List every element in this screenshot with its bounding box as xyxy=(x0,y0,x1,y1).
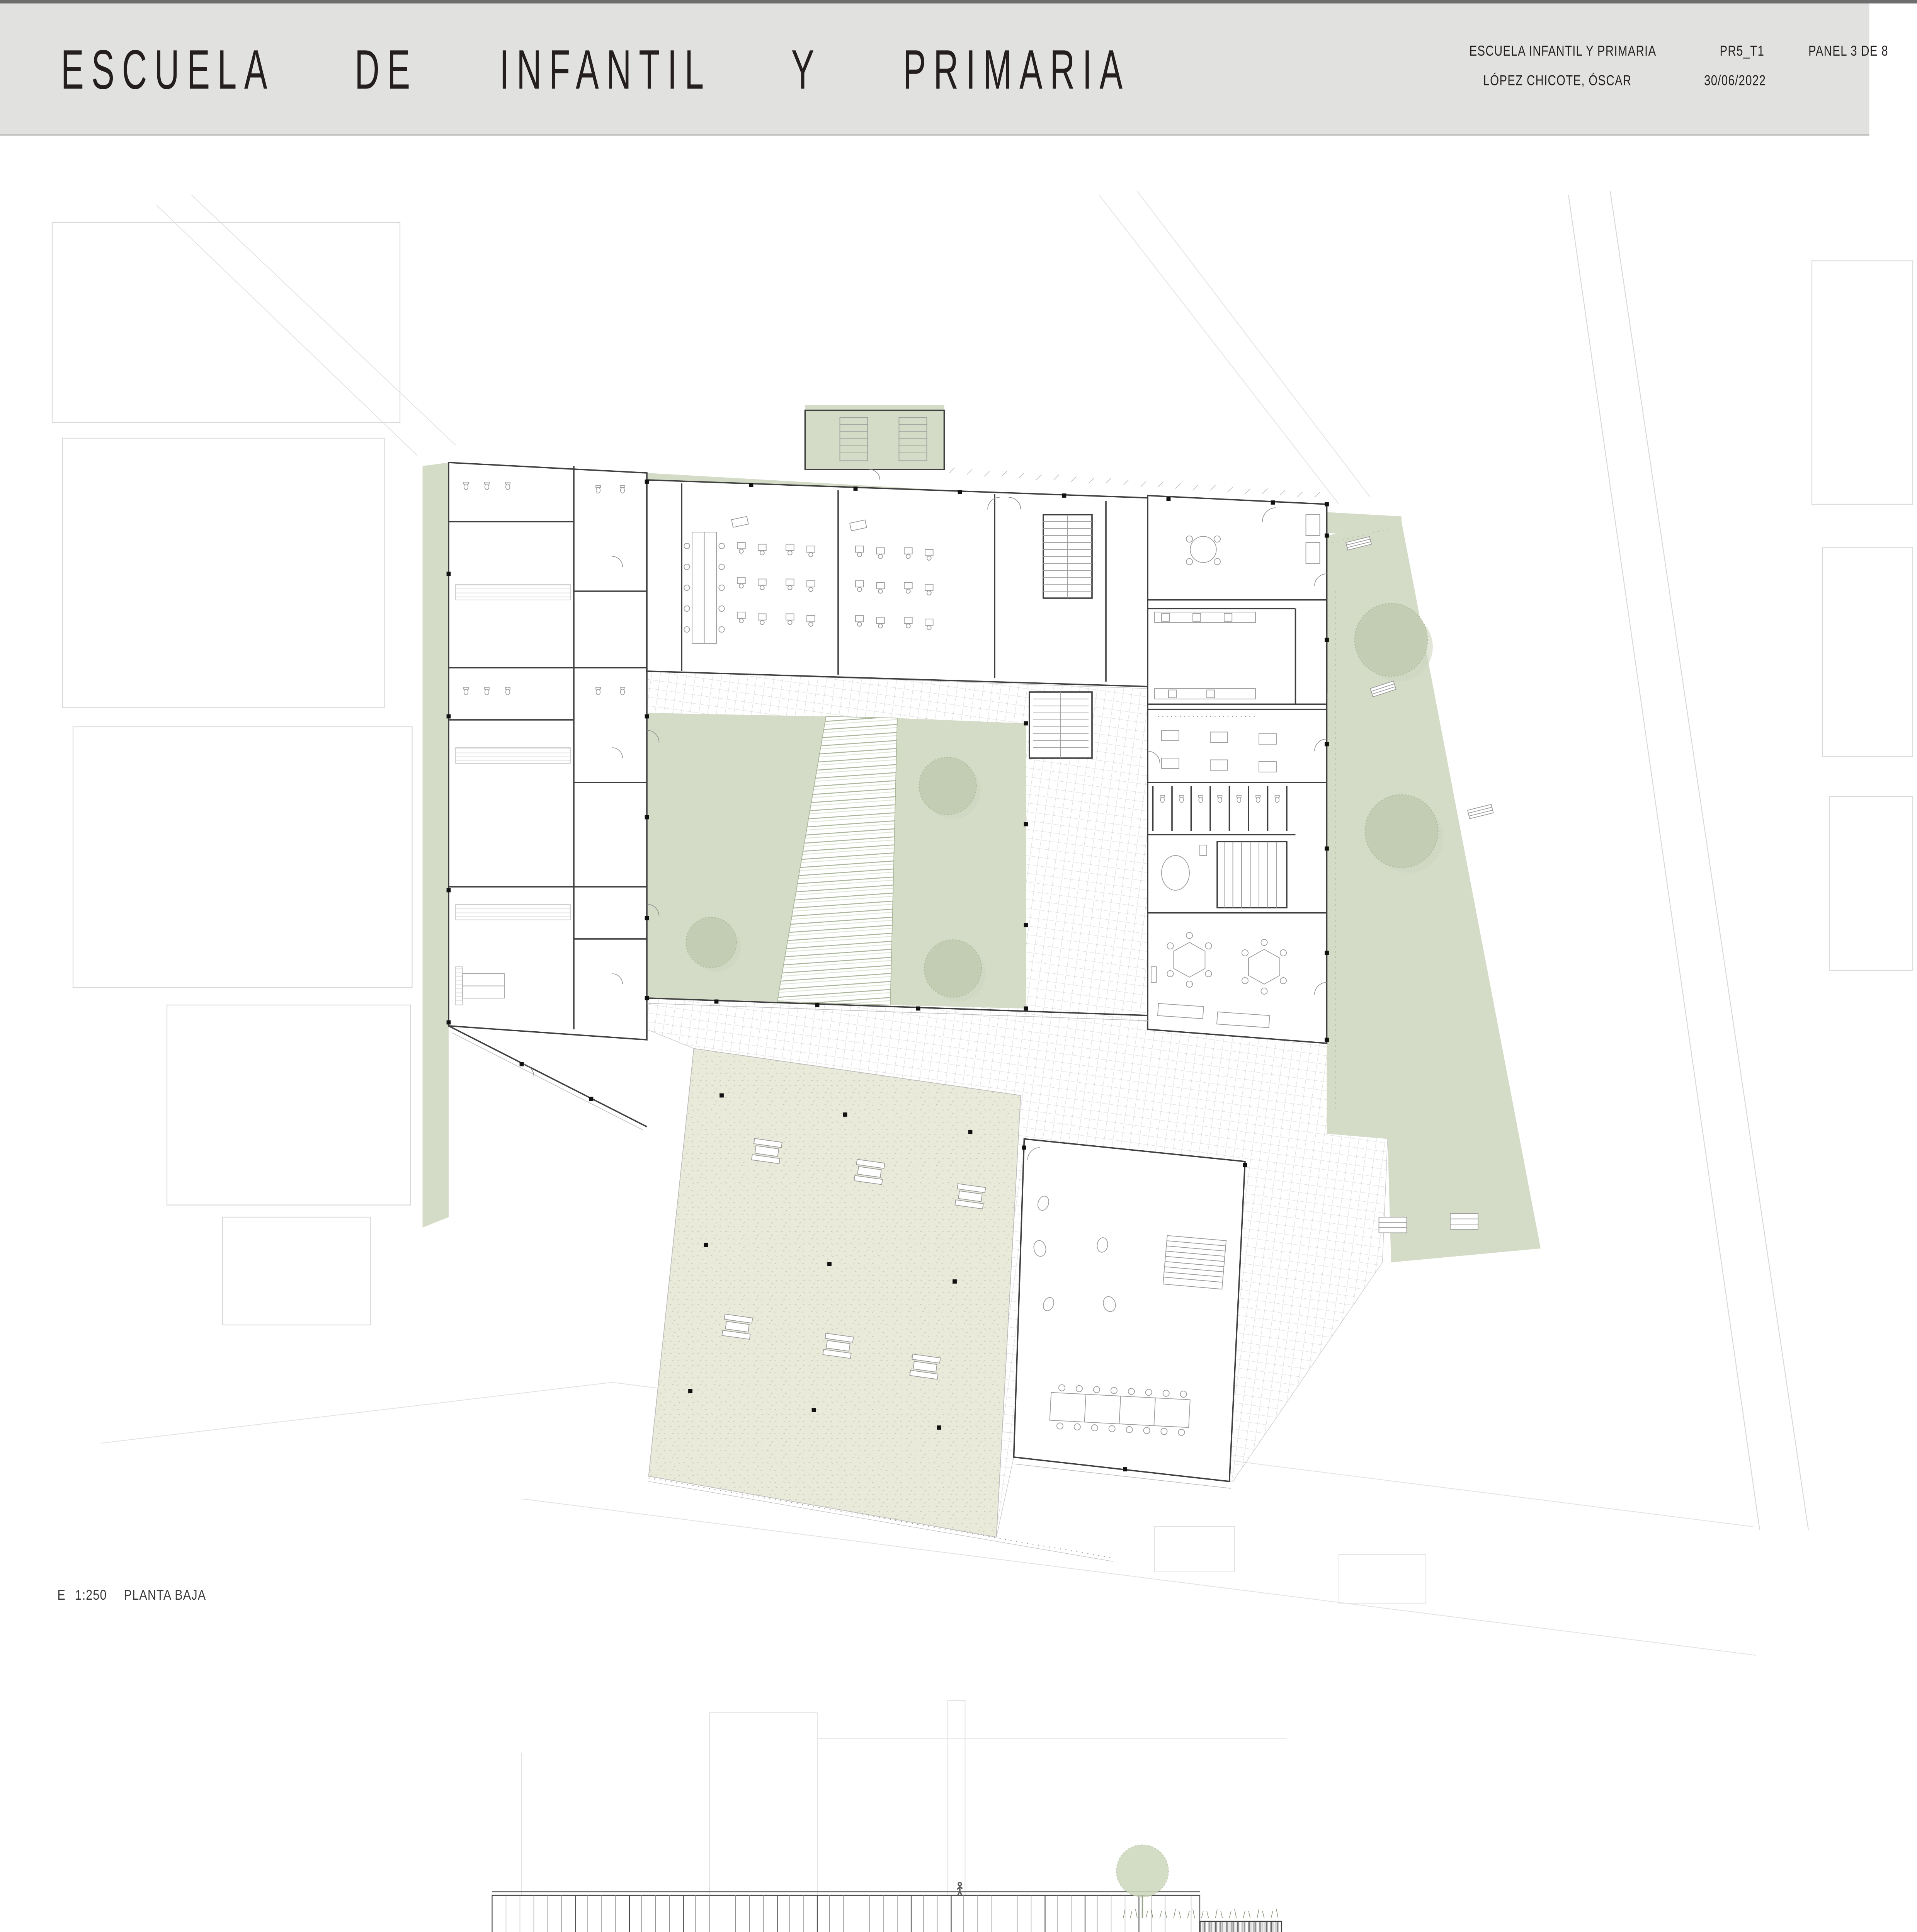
courtyard-stair xyxy=(1029,692,1092,758)
drawings-canvas xyxy=(0,0,1917,1932)
floor-plan xyxy=(423,405,1541,1561)
louvre-box xyxy=(1200,1921,1281,1932)
context-background xyxy=(522,1701,1287,1895)
gym-stair xyxy=(1163,1236,1226,1289)
south-elevation xyxy=(70,1701,1756,1932)
panel-page: ESCUELA DE INFANTIL Y PRIMARIA ESCUELA I… xyxy=(0,0,1917,1932)
gym-block xyxy=(1014,1139,1245,1481)
southwest-facade xyxy=(449,1026,647,1127)
